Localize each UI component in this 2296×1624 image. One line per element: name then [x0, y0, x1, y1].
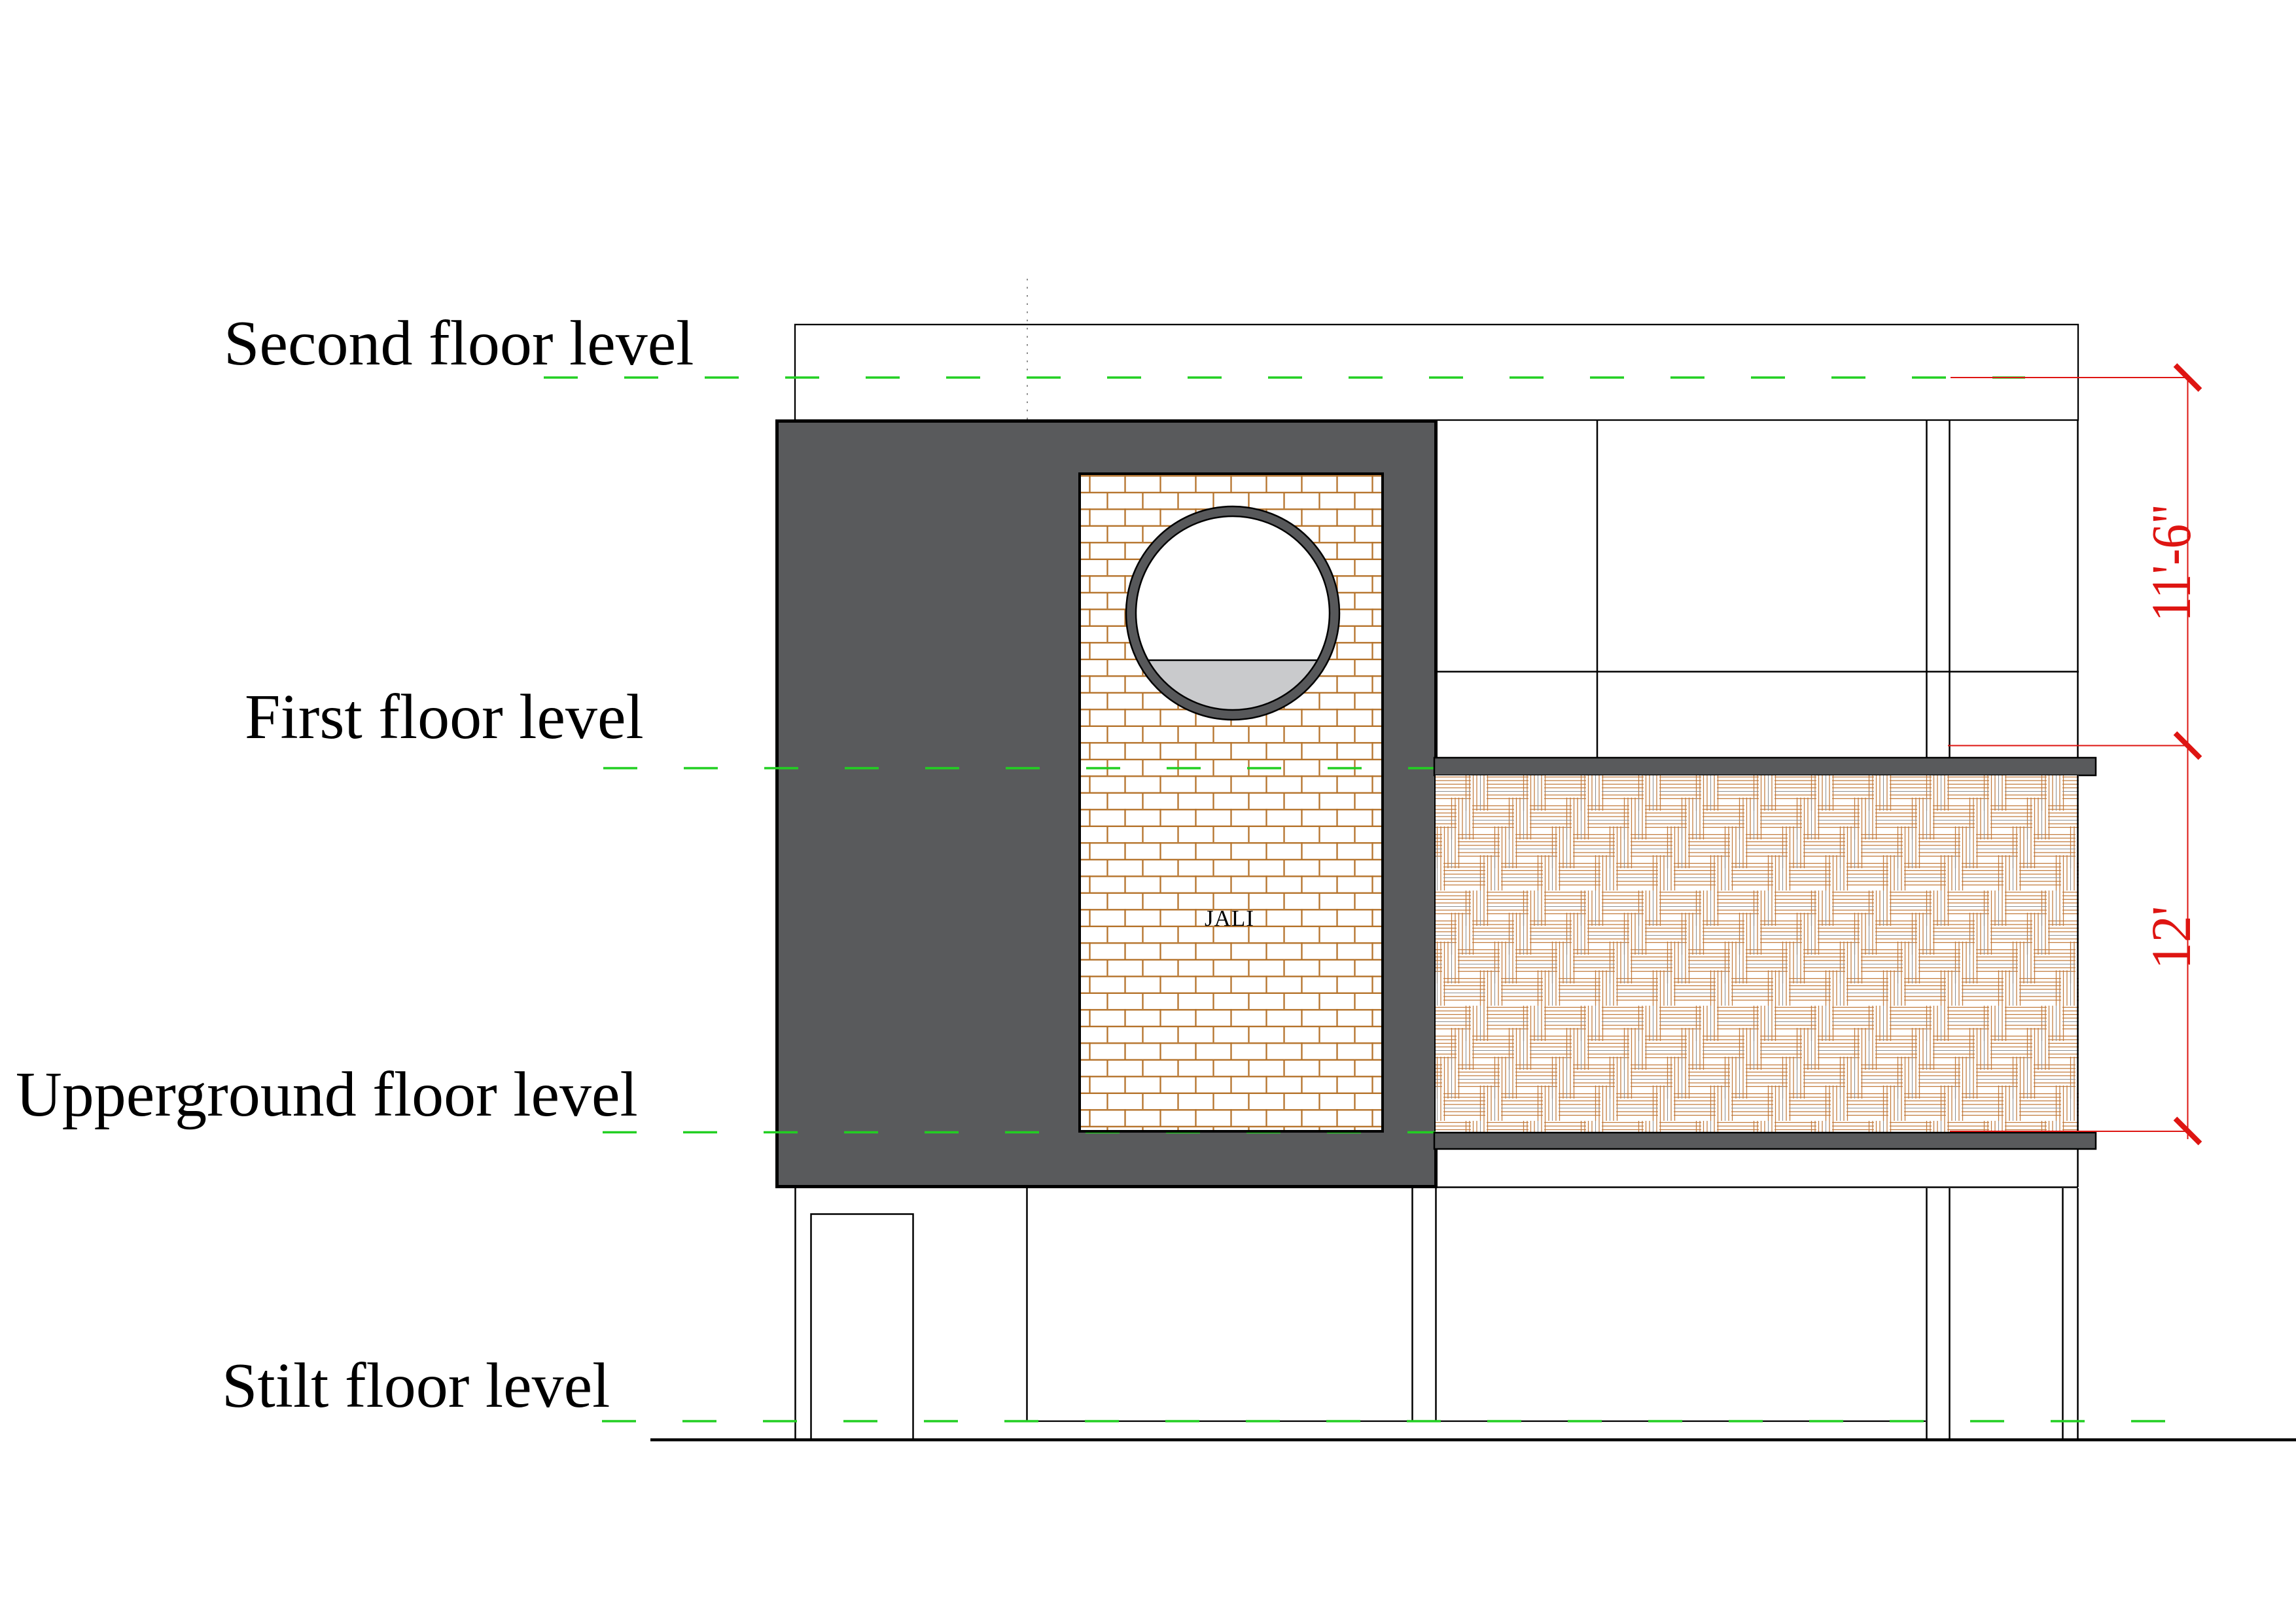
svg-text:Upperground floor level: Upperground floor level: [16, 1059, 638, 1130]
svg-text:Stilt floor level: Stilt floor level: [222, 1350, 610, 1421]
svg-text:JALI: JALI: [1205, 906, 1254, 931]
svg-text:12': 12': [2140, 906, 2202, 970]
svg-text:Second floor level: Second floor level: [224, 308, 694, 379]
svg-text:11'-6": 11'-6": [2140, 504, 2202, 622]
svg-text:First floor level: First floor level: [245, 682, 644, 752]
